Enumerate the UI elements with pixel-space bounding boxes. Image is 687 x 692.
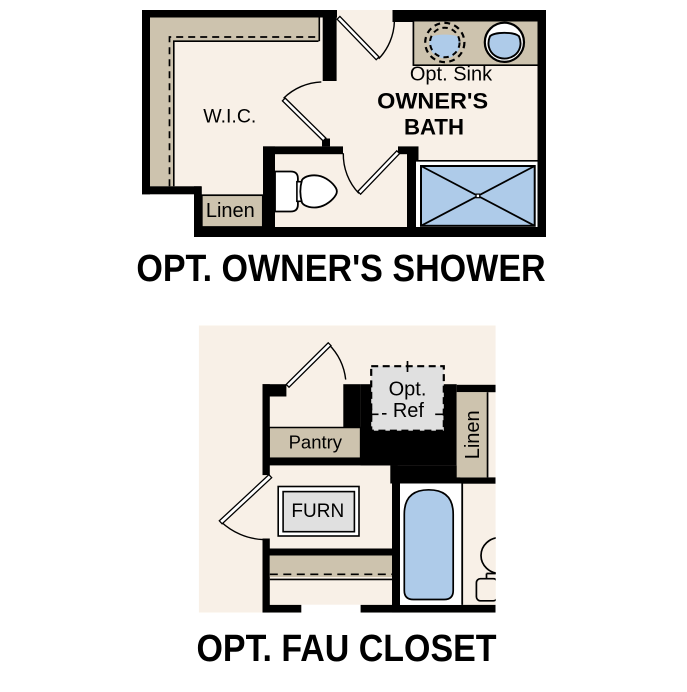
svg-text:OPT. OWNER'S SHOWER: OPT. OWNER'S SHOWER [136, 248, 545, 290]
svg-text:Pantry: Pantry [289, 432, 343, 453]
svg-text:OPT. FAU CLOSET: OPT. FAU CLOSET [197, 628, 497, 670]
svg-text:Opt. Sink: Opt. Sink [410, 64, 493, 86]
svg-text:OWNER'S: OWNER'S [377, 88, 488, 113]
svg-text:Linen: Linen [206, 200, 255, 222]
svg-text:W.I.C.: W.I.C. [203, 105, 256, 127]
svg-text:BATH: BATH [404, 115, 464, 140]
svg-text:FURN: FURN [291, 501, 344, 522]
svg-text:Linen: Linen [462, 410, 484, 459]
svg-text:Ref: Ref [393, 400, 425, 422]
svg-text:Opt.: Opt. [389, 378, 427, 400]
